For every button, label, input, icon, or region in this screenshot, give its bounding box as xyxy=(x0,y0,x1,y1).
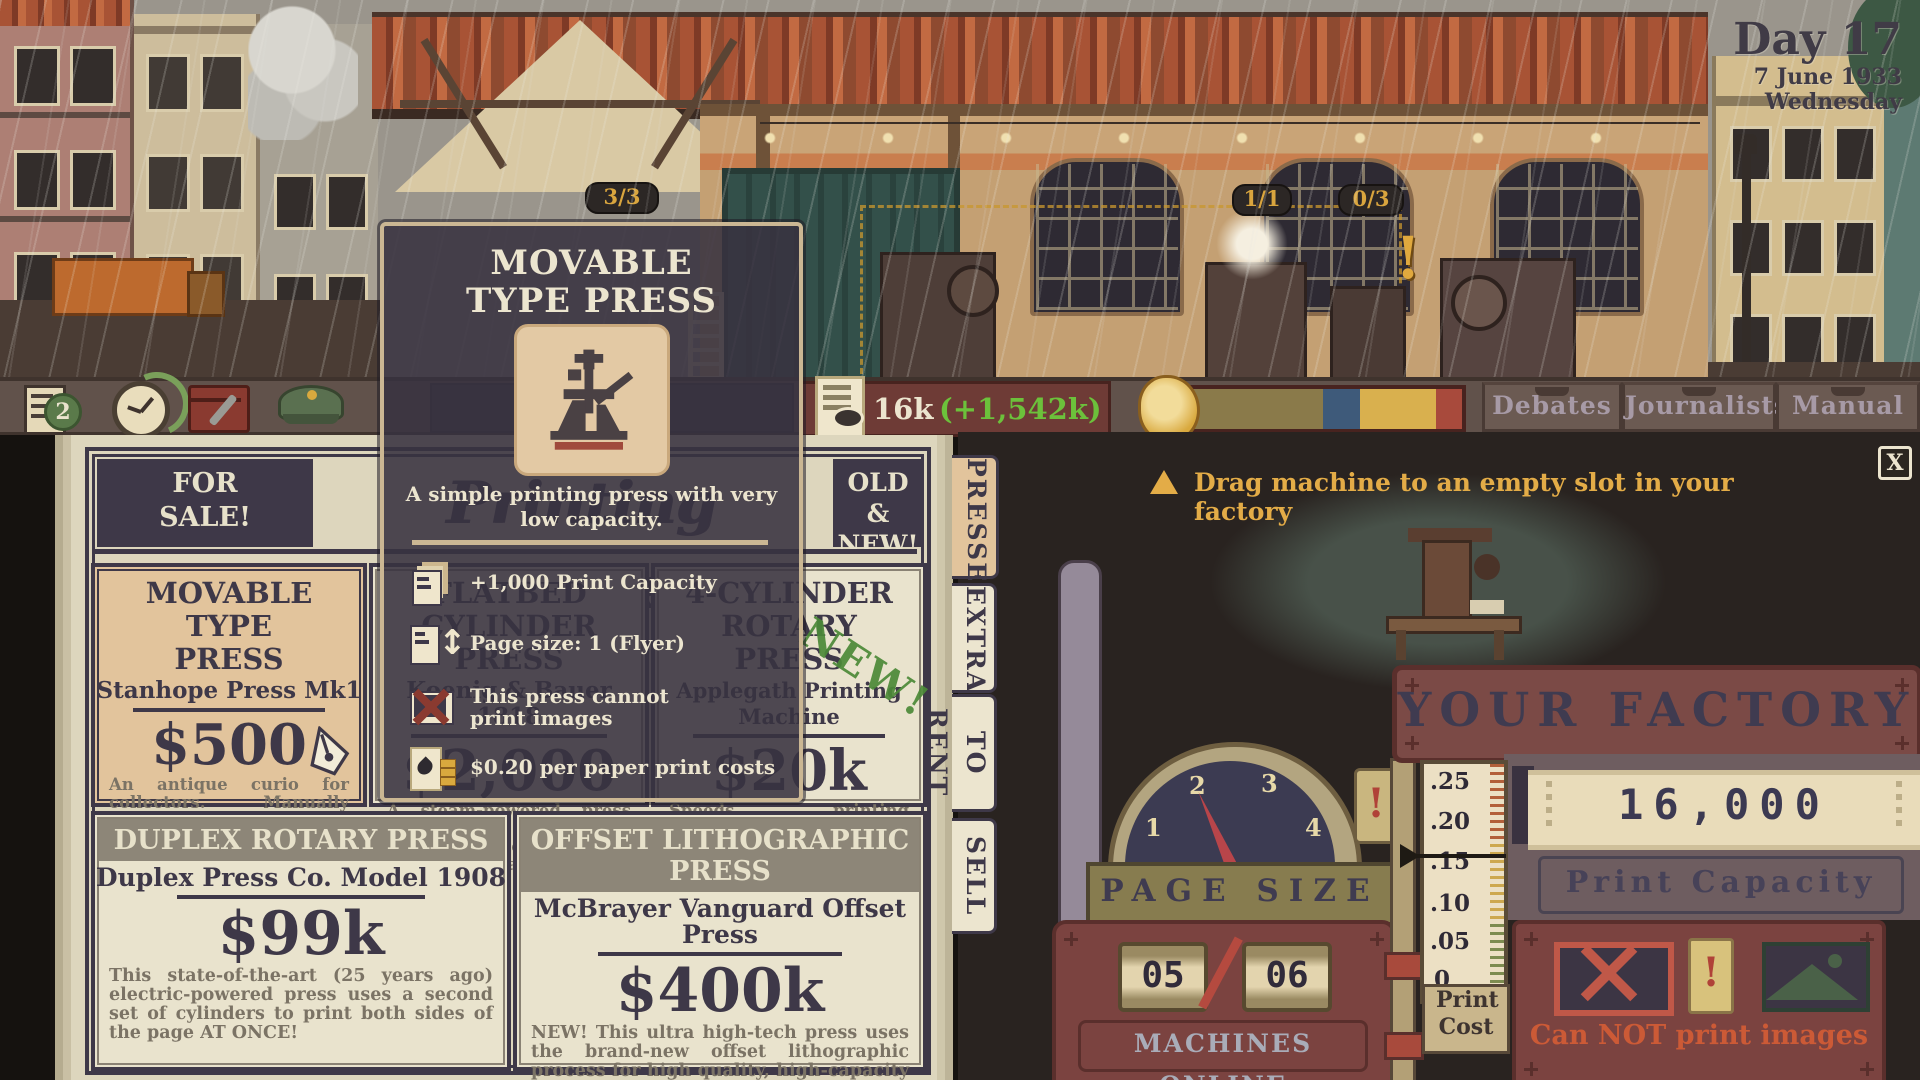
paper-sheet xyxy=(1470,600,1504,614)
corner-cross xyxy=(1895,678,1909,692)
drawer-handle xyxy=(1831,387,1865,396)
corner-cross xyxy=(1895,736,1909,750)
stat-page-size: ↕ Page size: 1 (Flyer) xyxy=(410,621,799,665)
date-display: Day 17 7 June 1933 Wednesday xyxy=(1642,16,1902,114)
odometer-current: 05 xyxy=(1118,942,1208,1012)
corner-cross xyxy=(1860,1062,1874,1076)
odometer-total: 06 xyxy=(1242,942,1332,1012)
press-wheel xyxy=(1474,554,1500,580)
cost-pointer-arrow[interactable] xyxy=(1400,844,1420,868)
date-line: 7 June 1933 xyxy=(1642,64,1902,90)
old-new-tag: OLD & NEW! xyxy=(833,459,923,547)
corner-cross xyxy=(1064,932,1078,946)
gauge-tick-3: 3 xyxy=(1261,769,1278,798)
machines-online-label: MACHINES ONLINE xyxy=(1134,1029,1312,1080)
tab-label: SELL xyxy=(961,836,990,916)
capacity-tape: 16,000 xyxy=(1528,770,1920,850)
listing-maker: Stanhope Press Mk1 xyxy=(95,678,363,704)
listing-name: DUPLEX ROTARY PRESS xyxy=(99,819,503,861)
factory-panel: Drag machine to an empty slot in your fa… xyxy=(958,432,1920,1080)
tab-sell[interactable]: SELL xyxy=(952,818,997,934)
corner-cross xyxy=(1405,736,1419,750)
tooltip-stats: +1,000 Print Capacity ↕ Page size: 1 (Fl… xyxy=(384,560,799,806)
date-day: Day 17 xyxy=(1642,16,1902,64)
tooltip-title: MOVABLE TYPE PRESS xyxy=(442,244,742,320)
corner-cross xyxy=(1405,678,1419,692)
stat-text: $0.20 per paper print costs xyxy=(470,756,775,778)
tape-perforation xyxy=(1546,781,1552,829)
drawer-handle xyxy=(1535,387,1569,396)
listing-price: $99k xyxy=(95,901,507,967)
no-images-icon xyxy=(1554,942,1674,1016)
listing-name: MOVABLE TYPE PRESS xyxy=(129,577,329,676)
images-alert-button[interactable]: ! xyxy=(1688,938,1734,1014)
listing-maker: Duplex Press Co. Model 1908 xyxy=(95,865,507,891)
movable-press-icon xyxy=(535,343,645,453)
print-cost-label: Print Cost xyxy=(1436,987,1496,1041)
pole-clamp xyxy=(1384,1032,1424,1060)
press-tooltip: MOVABLE TYPE PRESS A simple printing pre… xyxy=(380,222,803,802)
stat-print-capacity: +1,000 Print Capacity xyxy=(410,560,799,604)
print-cost-label-box: Print Cost xyxy=(1422,984,1510,1054)
print-capacity-label: Print Capacity xyxy=(1566,865,1877,900)
warning-icon xyxy=(1150,470,1178,494)
machines-online-panel: 05 06 MACHINES ONLINE xyxy=(1052,920,1396,1080)
page-size-gauge[interactable]: 1 2 3 4 xyxy=(1108,742,1362,869)
hud-bar: 2 20k xyxy=(0,377,1920,435)
money-value: 16k xyxy=(873,392,933,426)
stat-text: +1,000 Print Capacity xyxy=(470,571,717,593)
listing-maker: McBrayer Vanguard Offset Press xyxy=(517,896,923,948)
ink-oval xyxy=(832,407,864,429)
tab-presses[interactable]: PRESSES xyxy=(952,455,999,579)
for-sale-tag: FOR SALE! xyxy=(97,459,313,547)
city-scene: ! 3/3 1/1 0/3 D xyxy=(0,0,1920,435)
police-cap-icon[interactable] xyxy=(278,385,344,421)
bench-leg xyxy=(1494,630,1504,660)
sun-dot xyxy=(1828,954,1842,968)
cap-brim xyxy=(283,414,339,424)
listing-description: NEW! This ultra high-tech press uses the… xyxy=(517,1024,923,1080)
cap-emblem xyxy=(307,390,317,400)
bench-leg xyxy=(1396,630,1406,660)
print-capacity-icon xyxy=(410,560,454,604)
cost-label: .25 xyxy=(1430,768,1470,795)
menu-button-manual[interactable]: Manual xyxy=(1776,382,1920,432)
menu-button-debates[interactable]: Debates xyxy=(1482,382,1622,432)
rain-overlay xyxy=(0,0,1920,435)
tab-to-rent[interactable]: TO RENT xyxy=(952,694,997,812)
tape-perforation xyxy=(1896,781,1902,829)
old-new-label: OLD & NEW! xyxy=(838,468,919,559)
mountain-shape xyxy=(1766,964,1858,1000)
machines-online-plaque: MACHINES ONLINE xyxy=(1078,1020,1368,1072)
stat-text: This press cannot print images xyxy=(470,685,720,729)
newspaper-stack-icon xyxy=(815,376,865,440)
gauge-tick-4: 4 xyxy=(1305,813,1322,842)
images-status-text: Can NOT print images xyxy=(1516,1020,1882,1051)
listing-name: OFFSET LITHOGRAPHIC PRESS xyxy=(521,819,919,892)
game-screen: ! 3/3 1/1 0/3 D xyxy=(0,0,1920,1080)
capacity-value: 16,000 xyxy=(1528,775,1920,835)
no-images-icon xyxy=(410,685,454,729)
cost-label: .05 xyxy=(1430,928,1470,955)
bar-segment-yellow xyxy=(1360,389,1435,429)
for-sale-label: FOR SALE! xyxy=(140,467,270,535)
press-listing-duplex[interactable]: DUPLEX ROTARY PRESS Duplex Press Co. Mod… xyxy=(91,811,511,1071)
cost-pointer-line xyxy=(1410,854,1506,858)
tick-strip-red xyxy=(1490,764,1504,844)
date-weekday: Wednesday xyxy=(1642,90,1902,114)
timer-clock-icon[interactable] xyxy=(112,381,170,439)
page-size-icon: ↕ xyxy=(410,621,454,665)
paper-line xyxy=(823,385,851,390)
tab-label: TO RENT xyxy=(923,708,990,797)
bar-segment-blue xyxy=(1323,389,1361,429)
your-factory-title: YOUR FACTORY xyxy=(1398,683,1916,738)
tasks-count-badge: 2 xyxy=(44,393,82,431)
paper-line xyxy=(823,395,851,400)
page-size-label: PAGE SIZE xyxy=(1100,873,1379,909)
tab-extras[interactable]: EXTRAS xyxy=(952,583,997,693)
ink-cost-icon xyxy=(410,745,454,789)
listing-description: This state-of-the-art (25 years ago) ele… xyxy=(95,967,507,1043)
tooltip-divider xyxy=(412,540,768,545)
toolbox-icon[interactable] xyxy=(188,385,250,433)
stat-no-images: This press cannot print images xyxy=(410,685,799,729)
cost-label: .15 xyxy=(1430,848,1470,875)
bar-segment-red xyxy=(1436,389,1462,429)
tab-label: PRESSES xyxy=(962,458,991,603)
corner-cross xyxy=(1370,932,1384,946)
tooltip-description: A simple printing press with very low ca… xyxy=(404,482,779,532)
reputation-bar xyxy=(1168,385,1466,433)
draggable-machine[interactable] xyxy=(1386,520,1516,660)
press-listing-movable-type[interactable]: MOVABLE TYPE PRESS Stanhope Press Mk1 $5… xyxy=(91,563,367,807)
money-display: 16k (+1,542k) xyxy=(800,381,1111,437)
cost-label: .10 xyxy=(1430,890,1470,917)
stat-text: Page size: 1 (Flyer) xyxy=(470,632,685,654)
money-delta: (+1,542k) xyxy=(939,392,1102,426)
images-status-panel: ! Can NOT print images xyxy=(1512,920,1886,1080)
print-cost-ruler: .25 .20 .15 .10 .05 0 xyxy=(1420,760,1508,1004)
image-icon xyxy=(1762,942,1870,1012)
menu-button-journalists[interactable]: Journalists xyxy=(1622,382,1776,432)
print-capacity-plaque: Print Capacity xyxy=(1538,856,1904,914)
drawer-handle xyxy=(1682,387,1716,396)
listing-price: $400k xyxy=(517,958,923,1024)
drag-hint: Drag machine to an empty slot in your fa… xyxy=(1194,468,1834,526)
gauge-tick-1: 1 xyxy=(1145,813,1162,842)
cost-label: .20 xyxy=(1430,808,1470,835)
alert-exclamation: ! xyxy=(1702,949,1720,996)
corner-cross xyxy=(1524,932,1538,946)
press-body xyxy=(1422,540,1472,620)
page-size-plaque: PAGE SIZE xyxy=(1086,862,1394,926)
stat-print-cost: $0.20 per paper print costs xyxy=(410,745,799,789)
pole-clamp xyxy=(1384,952,1424,980)
alert-exclamation: ! xyxy=(1367,780,1385,827)
your-factory-header: YOUR FACTORY xyxy=(1392,665,1920,763)
press-listing-offset[interactable]: OFFSET LITHOGRAPHIC PRESS McBrayer Vangu… xyxy=(513,811,927,1071)
press-icon-tile xyxy=(514,324,670,476)
close-button[interactable]: X xyxy=(1878,446,1912,480)
corner-cross xyxy=(1524,1062,1538,1076)
gauge-tick-2: 2 xyxy=(1189,771,1206,800)
